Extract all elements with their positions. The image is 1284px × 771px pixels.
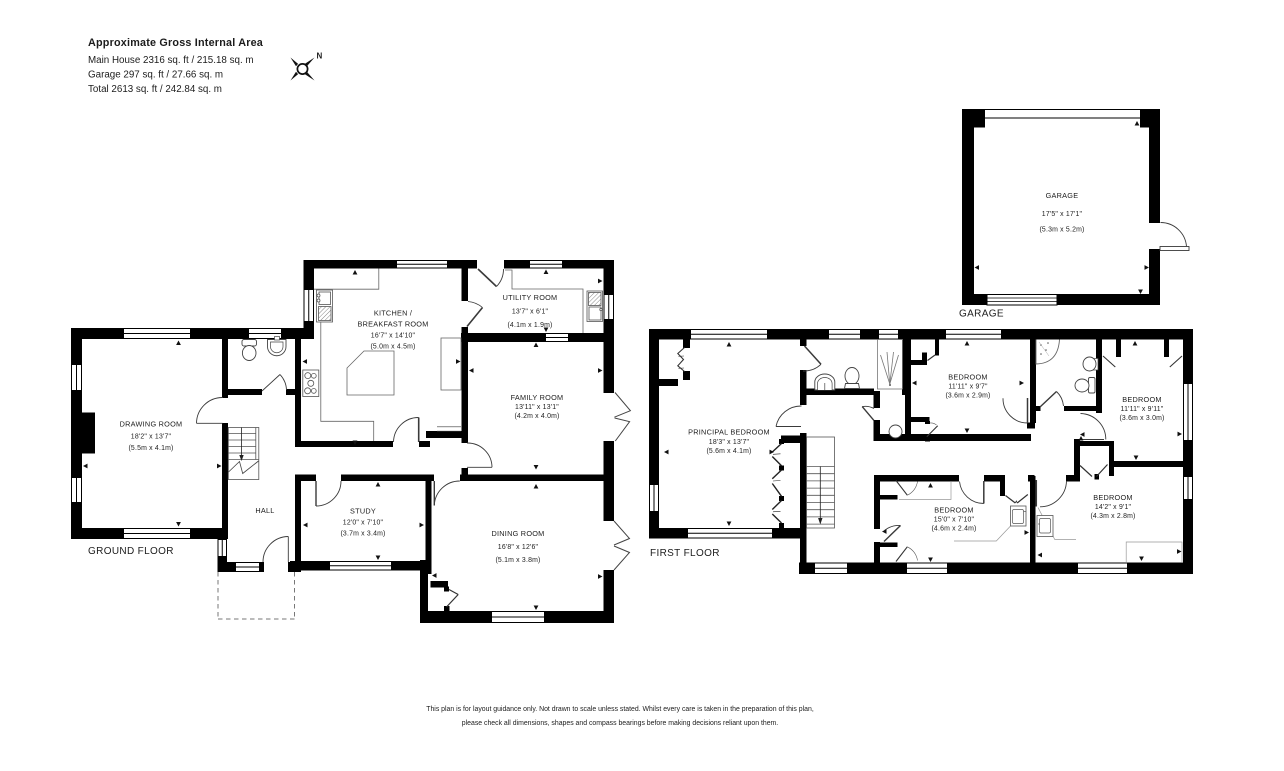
svg-text:12'0" x 7'10": 12'0" x 7'10" bbox=[343, 520, 384, 527]
svg-text:11'11" x 9'7": 11'11" x 9'7" bbox=[948, 384, 988, 391]
svg-text:GARAGE: GARAGE bbox=[1046, 191, 1079, 200]
svg-text:(5.5m x 4.1m): (5.5m x 4.1m) bbox=[128, 445, 173, 452]
svg-text:14'2" x 9'1": 14'2" x 9'1" bbox=[1095, 504, 1132, 511]
svg-text:Approximate Gross Internal Are: Approximate Gross Internal Area bbox=[88, 37, 264, 49]
svg-text:18'3" x 13'7": 18'3" x 13'7" bbox=[709, 439, 750, 446]
svg-text:STUDY: STUDY bbox=[350, 507, 376, 516]
svg-text:(3.6m x 2.9m): (3.6m x 2.9m) bbox=[945, 393, 990, 400]
svg-text:13'11" x 13'1": 13'11" x 13'1" bbox=[515, 404, 559, 411]
svg-text:FIRST FLOOR: FIRST FLOOR bbox=[650, 548, 720, 559]
svg-text:please check all dimensions, s: please check all dimensions, shapes and … bbox=[462, 720, 778, 727]
svg-text:17'5" x 17'1": 17'5" x 17'1" bbox=[1042, 211, 1083, 218]
svg-text:BEDROOM: BEDROOM bbox=[1093, 493, 1132, 502]
svg-text:(4.1m x 1.9m): (4.1m x 1.9m) bbox=[507, 322, 552, 329]
svg-text:Total 2613 sq. ft / 242.84 sq.: Total 2613 sq. ft / 242.84 sq. m bbox=[88, 84, 222, 95]
svg-text:(4.2m x 4.0m): (4.2m x 4.0m) bbox=[514, 413, 559, 420]
svg-text:KITCHEN /: KITCHEN / bbox=[374, 309, 413, 318]
svg-text:GARAGE: GARAGE bbox=[959, 309, 1004, 320]
svg-text:(5.1m x 3.8m): (5.1m x 3.8m) bbox=[495, 557, 540, 564]
svg-text:BREAKFAST ROOM: BREAKFAST ROOM bbox=[357, 320, 428, 329]
svg-text:(5.6m x 4.1m): (5.6m x 4.1m) bbox=[706, 448, 751, 455]
svg-text:11'11" x 9'11": 11'11" x 9'11" bbox=[1121, 406, 1164, 413]
svg-text:BEDROOM: BEDROOM bbox=[1122, 395, 1161, 404]
svg-text:Garage 297 sq. ft / 27.66 sq.: Garage 297 sq. ft / 27.66 sq. m bbox=[88, 70, 223, 81]
svg-text:DRAWING ROOM: DRAWING ROOM bbox=[120, 420, 183, 429]
svg-text:(3.6m x 3.0m): (3.6m x 3.0m) bbox=[1119, 415, 1164, 422]
svg-text:(5.0m x 4.5m): (5.0m x 4.5m) bbox=[370, 344, 415, 351]
svg-text:Main House 2316 sq. ft / 215.1: Main House 2316 sq. ft / 215.18 sq. m bbox=[88, 55, 254, 66]
svg-text:(5.3m x 5.2m): (5.3m x 5.2m) bbox=[1039, 227, 1084, 234]
svg-text:DINING ROOM: DINING ROOM bbox=[491, 529, 544, 538]
svg-text:16'7" x 14'10": 16'7" x 14'10" bbox=[371, 333, 416, 340]
svg-text:16'8" x 12'6": 16'8" x 12'6" bbox=[498, 544, 539, 551]
svg-text:18'2" x 13'7": 18'2" x 13'7" bbox=[131, 434, 172, 441]
svg-text:(3.7m x 3.4m): (3.7m x 3.4m) bbox=[340, 531, 385, 538]
svg-text:This plan is for layout guidan: This plan is for layout guidance only. N… bbox=[426, 706, 814, 713]
svg-text:13'7" x 6'1": 13'7" x 6'1" bbox=[512, 309, 549, 316]
svg-text:15'0" x 7'10": 15'0" x 7'10" bbox=[934, 517, 975, 524]
svg-text:BEDROOM: BEDROOM bbox=[948, 373, 987, 382]
svg-text:N: N bbox=[317, 52, 323, 61]
svg-text:UTILITY ROOM: UTILITY ROOM bbox=[503, 293, 558, 302]
svg-text:PRINCIPAL BEDROOM: PRINCIPAL BEDROOM bbox=[688, 428, 770, 437]
svg-text:(4.6m x 2.4m): (4.6m x 2.4m) bbox=[931, 526, 976, 533]
svg-text:GROUND FLOOR: GROUND FLOOR bbox=[88, 546, 174, 557]
svg-text:FAMILY ROOM: FAMILY ROOM bbox=[511, 393, 564, 402]
svg-text:BEDROOM: BEDROOM bbox=[934, 506, 973, 515]
svg-text:HALL: HALL bbox=[255, 506, 274, 515]
svg-text:(4.3m x 2.8m): (4.3m x 2.8m) bbox=[1090, 513, 1135, 520]
